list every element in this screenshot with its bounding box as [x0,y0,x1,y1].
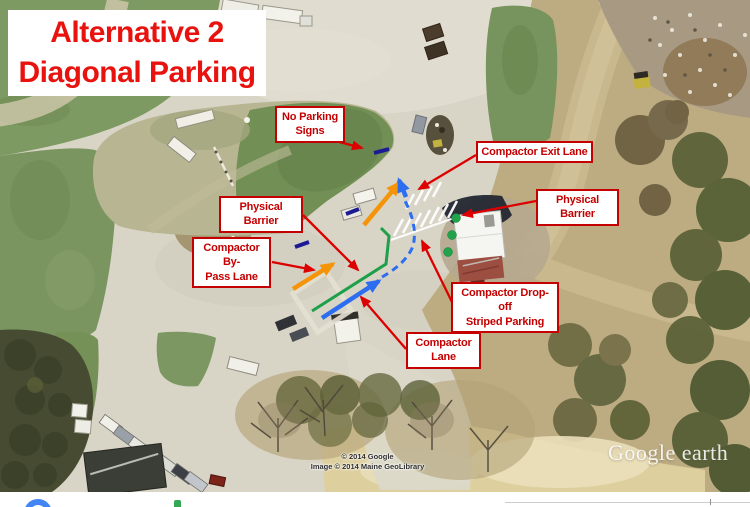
label-compactor-lane: Compactor Lane [406,332,481,369]
label-physical-barrier-left: Physical Barrier [219,196,303,233]
label-compactor-exit-lane: Compactor Exit Lane [476,141,593,163]
aerial-photo [0,0,750,492]
label-compactor-bypass-lane: Compactor By- Pass Lane [192,237,271,288]
label-no-parking-signs: No Parking Signs [275,106,345,143]
ruler-hairline [505,502,750,503]
google-logo-l-fragment-icon [174,500,181,507]
slide: Alternative 2 Diagonal Parking No Parkin… [0,0,750,507]
grass-top-right-patch [486,6,557,150]
label-physical-barrier-right: Physical Barrier [536,189,619,226]
bottom-strip [0,492,750,507]
ruler-tick [710,499,711,505]
google-logo-fragment-icon [24,499,52,507]
label-compactor-dropoff: Compactor Drop-off Striped Parking [451,282,559,333]
